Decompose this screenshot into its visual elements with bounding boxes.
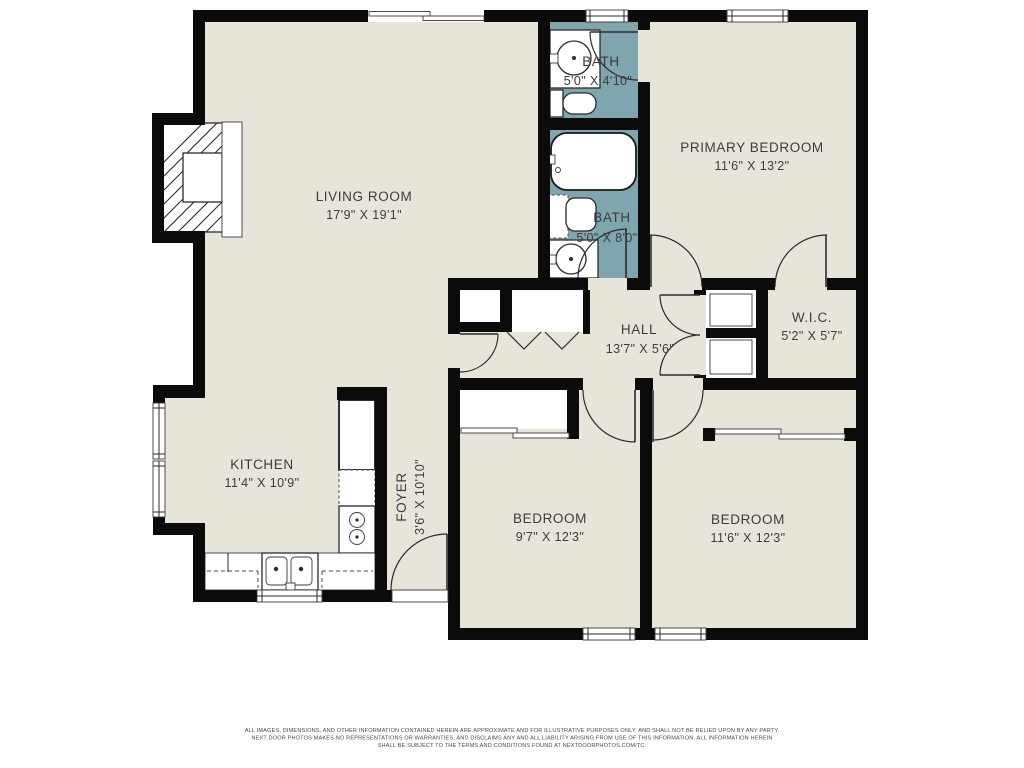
bath-small-label: BATH (582, 54, 619, 69)
wall (375, 400, 387, 590)
kitchen-cabinet-dashed (339, 470, 375, 506)
wall (538, 10, 550, 290)
window (583, 628, 635, 640)
wall (337, 387, 387, 400)
window (257, 590, 322, 602)
wall (856, 10, 868, 640)
wall (706, 628, 868, 640)
window (153, 403, 165, 459)
window (586, 10, 628, 22)
wall (484, 10, 586, 22)
disclaimer-line-2: NEXT DOOR PHOTOS MAKES NO REPRESENTATION… (251, 736, 772, 742)
wall (844, 428, 856, 441)
sliding-glass-door (368, 10, 484, 22)
hall-closet-a-interior (460, 290, 500, 323)
window (727, 10, 788, 22)
living-room-label: LIVING ROOM (316, 189, 413, 204)
tub-knob (556, 168, 561, 173)
disclaimer-line-1: ALL IMAGES, DIMENSIONS, AND OTHER INFORM… (245, 728, 780, 734)
wic-dims: 5'2" X 5'7" (781, 329, 842, 343)
toilet-bowl (563, 93, 596, 114)
bath-small-faucet (549, 54, 558, 63)
bath-large-label: BATH (593, 210, 630, 225)
wall (756, 278, 768, 390)
wall (448, 378, 583, 390)
wall (152, 231, 205, 243)
sink-drain-dot (299, 567, 303, 571)
disclaimer-line-3: SHALL BE SUBJECT TO THE TERMS AND CONDIT… (378, 743, 647, 749)
wall (827, 278, 868, 290)
bedroom-left-label: BEDROOM (513, 511, 587, 526)
bedroom-left-dims: 9'7" X 12'3" (516, 530, 585, 544)
hall-label: HALL (621, 322, 657, 337)
wall (153, 385, 205, 398)
wall (153, 398, 165, 403)
kitchen-dims: 11'4" X 10'9" (225, 476, 300, 490)
wall (193, 10, 368, 22)
wall (638, 10, 650, 30)
wall (703, 428, 715, 441)
sink-drain-dot (274, 567, 278, 571)
doorway-gap (588, 278, 627, 290)
wall (448, 628, 583, 640)
bedroom-left-closet-interior (460, 390, 567, 429)
stove-burner-dot (355, 518, 358, 521)
sink-drain-dot (572, 56, 576, 60)
wall (193, 590, 257, 602)
bath-large-dims: 5'0" X 8'0" (576, 231, 637, 245)
wall (583, 290, 590, 334)
linen-closet-shelves (706, 294, 756, 374)
wall (193, 10, 205, 115)
wall (627, 278, 650, 290)
foyer-label: FOYER (394, 472, 409, 522)
wall (567, 390, 579, 439)
living-room-floor-lower (205, 290, 448, 398)
wall (640, 378, 652, 640)
wall (638, 82, 650, 290)
window (655, 628, 706, 640)
primary-bedroom-label: PRIMARY BEDROOM (680, 140, 824, 155)
hall-dims: 13'7" X 5'6" (606, 342, 675, 356)
wall (193, 243, 205, 398)
doorway-gap (775, 278, 827, 290)
living-room-floor (205, 22, 538, 290)
shelf (710, 294, 752, 326)
living-room-dims: 17'9" X 19'1" (326, 208, 402, 222)
bathtub (551, 133, 636, 190)
doorway-gap (653, 378, 703, 390)
primary-bedroom-dims: 11'6" X 13'2" (715, 159, 790, 173)
fireplace-hearth (222, 122, 242, 237)
wall (448, 278, 588, 290)
wall (322, 590, 392, 602)
toilet-bowl (566, 198, 596, 231)
floor-plan: LIVING ROOM 17'9" X 19'1" KITCHEN 11'4" … (0, 0, 1024, 768)
wic-label: W.I.C. (792, 310, 832, 325)
doorway-gap (448, 334, 460, 368)
shelf (710, 340, 752, 374)
stove-burner-dot (355, 535, 358, 538)
wall (458, 322, 502, 332)
doorway-gap (638, 30, 650, 82)
entry-threshold (392, 590, 448, 602)
bedroom-right-dims: 11'6" X 12'3" (711, 531, 786, 545)
kitchen-label: KITCHEN (230, 457, 293, 472)
window (153, 461, 165, 517)
wall (448, 368, 460, 640)
wall (153, 523, 205, 535)
wall (703, 378, 868, 390)
sink-drain-dot (569, 257, 573, 261)
disclaimer-text: ALL IMAGES, DIMENSIONS, AND OTHER INFORM… (245, 728, 780, 749)
toilet-tank (550, 90, 563, 117)
foyer-dims: 3'6" X 10'10" (413, 459, 427, 535)
doorway-gap (650, 278, 702, 290)
hall-closet-b-interior (512, 290, 583, 332)
wall (153, 517, 165, 524)
refrigerator (339, 400, 375, 470)
wall (152, 113, 164, 243)
bedroom-right-floor (652, 390, 856, 628)
shelf-divider (706, 328, 756, 338)
fireplace-firebox (183, 153, 222, 202)
doorway-gap (583, 378, 635, 390)
bath-small-dims: 5'0" X 4'10" (564, 74, 633, 88)
wall (538, 118, 650, 130)
bedroom-right-label: BEDROOM (711, 512, 785, 527)
